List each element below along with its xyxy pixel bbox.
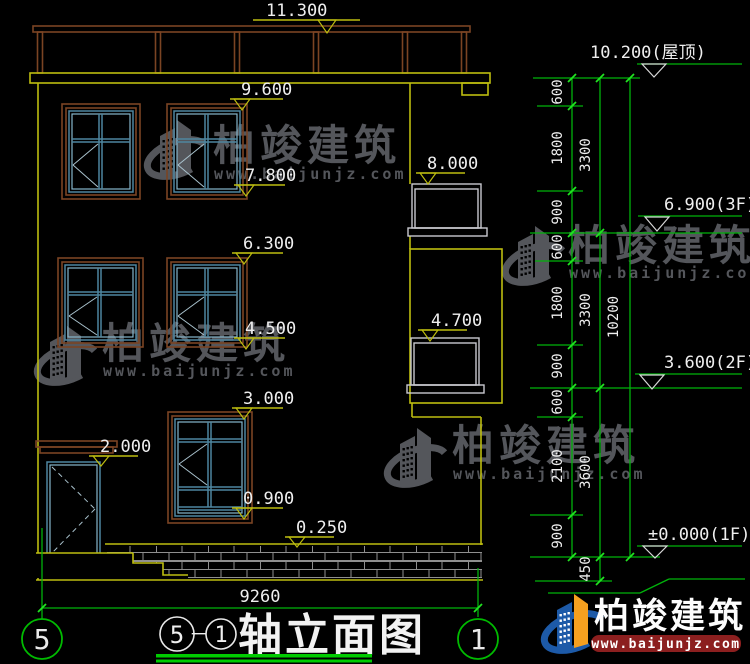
svg-text:0.900: 0.900 (243, 489, 294, 509)
svg-text:11.300: 11.300 (266, 1, 327, 21)
flag-1f: ±0.000(1F) (637, 525, 750, 558)
dim-600: 600 (550, 389, 566, 414)
watermark-4: 柏竣建筑 www.baijunjz.com (382, 422, 645, 492)
dim-10200: 10200 (606, 296, 622, 338)
dim-3300: 3300 (578, 138, 594, 172)
drawing-canvas: 柏竣建筑 www.baijunjz.com 柏竣建筑 www.baijunjz.… (0, 0, 750, 664)
cad-elevation-drawing: 柏竣建筑 www.baijunjz.com 柏竣建筑 www.baijunjz.… (0, 0, 750, 664)
entrance-door (47, 462, 100, 557)
footer-url: www.baijunjz.com (591, 637, 740, 652)
flag-6300: 6.300 (232, 234, 294, 264)
dim-1800: 1800 (550, 131, 566, 165)
watermark-logo (32, 326, 101, 390)
watermark-brand: 柏竣建筑 (213, 122, 401, 169)
svg-text:±0.000(1F): ±0.000(1F) (648, 525, 750, 545)
dim-900: 900 (550, 523, 566, 548)
svg-text:4.700: 4.700 (431, 311, 482, 331)
watermark-site: www.baijunjz.com (103, 362, 296, 380)
svg-text:3.000: 3.000 (243, 389, 294, 409)
dim-450: 450 (578, 556, 594, 581)
title-underline-1 (156, 654, 372, 658)
watermark-2: 柏竣建筑 www.baijunjz.com (500, 222, 750, 290)
axis-bubble-5: 5 (22, 619, 62, 659)
title-start-axis: 5 (170, 621, 184, 649)
footer-brand-name: 柏竣建筑 (594, 596, 746, 636)
dim-1800: 1800 (550, 286, 566, 320)
flag-2f: 3.600(2F) (635, 353, 750, 389)
balcony-3f (408, 184, 487, 236)
svg-text:10.200(屋顶): 10.200(屋顶) (590, 43, 706, 63)
watermark-site: www.baijunjz.com (569, 264, 750, 282)
flag-3000: 3.000 (232, 389, 294, 419)
svg-text:8.000: 8.000 (427, 154, 478, 174)
dim-3600: 3600 (578, 455, 594, 489)
window-3f-left (62, 104, 140, 199)
svg-text:6.300: 6.300 (243, 234, 294, 254)
svg-text:7.800: 7.800 (245, 166, 296, 186)
flag-0250: 0.250 (285, 518, 347, 547)
overall-width-dim: 9260 (240, 587, 281, 607)
dim-600: 600 (550, 79, 566, 104)
flag-0900: 0.900 (232, 489, 294, 519)
dim-3300: 3300 (578, 293, 594, 327)
window-1f (168, 412, 252, 523)
drawing-title: 轴立面图 (238, 611, 426, 660)
svg-text:1: 1 (470, 623, 487, 656)
svg-text:4.500: 4.500 (245, 319, 296, 339)
plinth (36, 544, 483, 580)
flag-9600: 9.600 (230, 80, 292, 110)
dim-600: 600 (550, 234, 566, 259)
title-underline-2 (156, 660, 372, 663)
axis-bubble-1: 1 (458, 619, 498, 659)
svg-text:9.600: 9.600 (241, 80, 292, 100)
dimension-chain-right: 600 1800 900 600 1800 900 600 2100 900 3… (530, 74, 742, 585)
title-block: 5 － 1 轴立面图 (156, 611, 426, 663)
watermark-logo (382, 428, 451, 492)
footer-brand: 柏竣建筑 www.baijunjz.com (539, 594, 746, 658)
balcony-3f-slab (408, 228, 487, 236)
svg-text:6.900(3F): 6.900(3F) (664, 195, 750, 215)
roof-parapet-railing (33, 26, 470, 73)
title-end-axis: 1 (214, 623, 227, 648)
svg-text:5: 5 (34, 623, 51, 656)
flag-4700: 4.700 (418, 311, 482, 341)
dim-900: 900 (550, 353, 566, 378)
dim-900: 900 (550, 199, 566, 224)
balcony-2f-slab (407, 385, 484, 393)
dim-2100: 2100 (550, 449, 566, 483)
svg-text:2.000: 2.000 (100, 437, 151, 457)
flag-8000: 8.000 (416, 154, 478, 184)
svg-text:0.250: 0.250 (296, 518, 347, 538)
balcony-2f (407, 338, 484, 393)
flag-roof: 10.200(屋顶) (590, 43, 742, 77)
flag-11300: 11.300 (253, 1, 360, 33)
svg-text:3.600(2F): 3.600(2F) (664, 353, 750, 373)
